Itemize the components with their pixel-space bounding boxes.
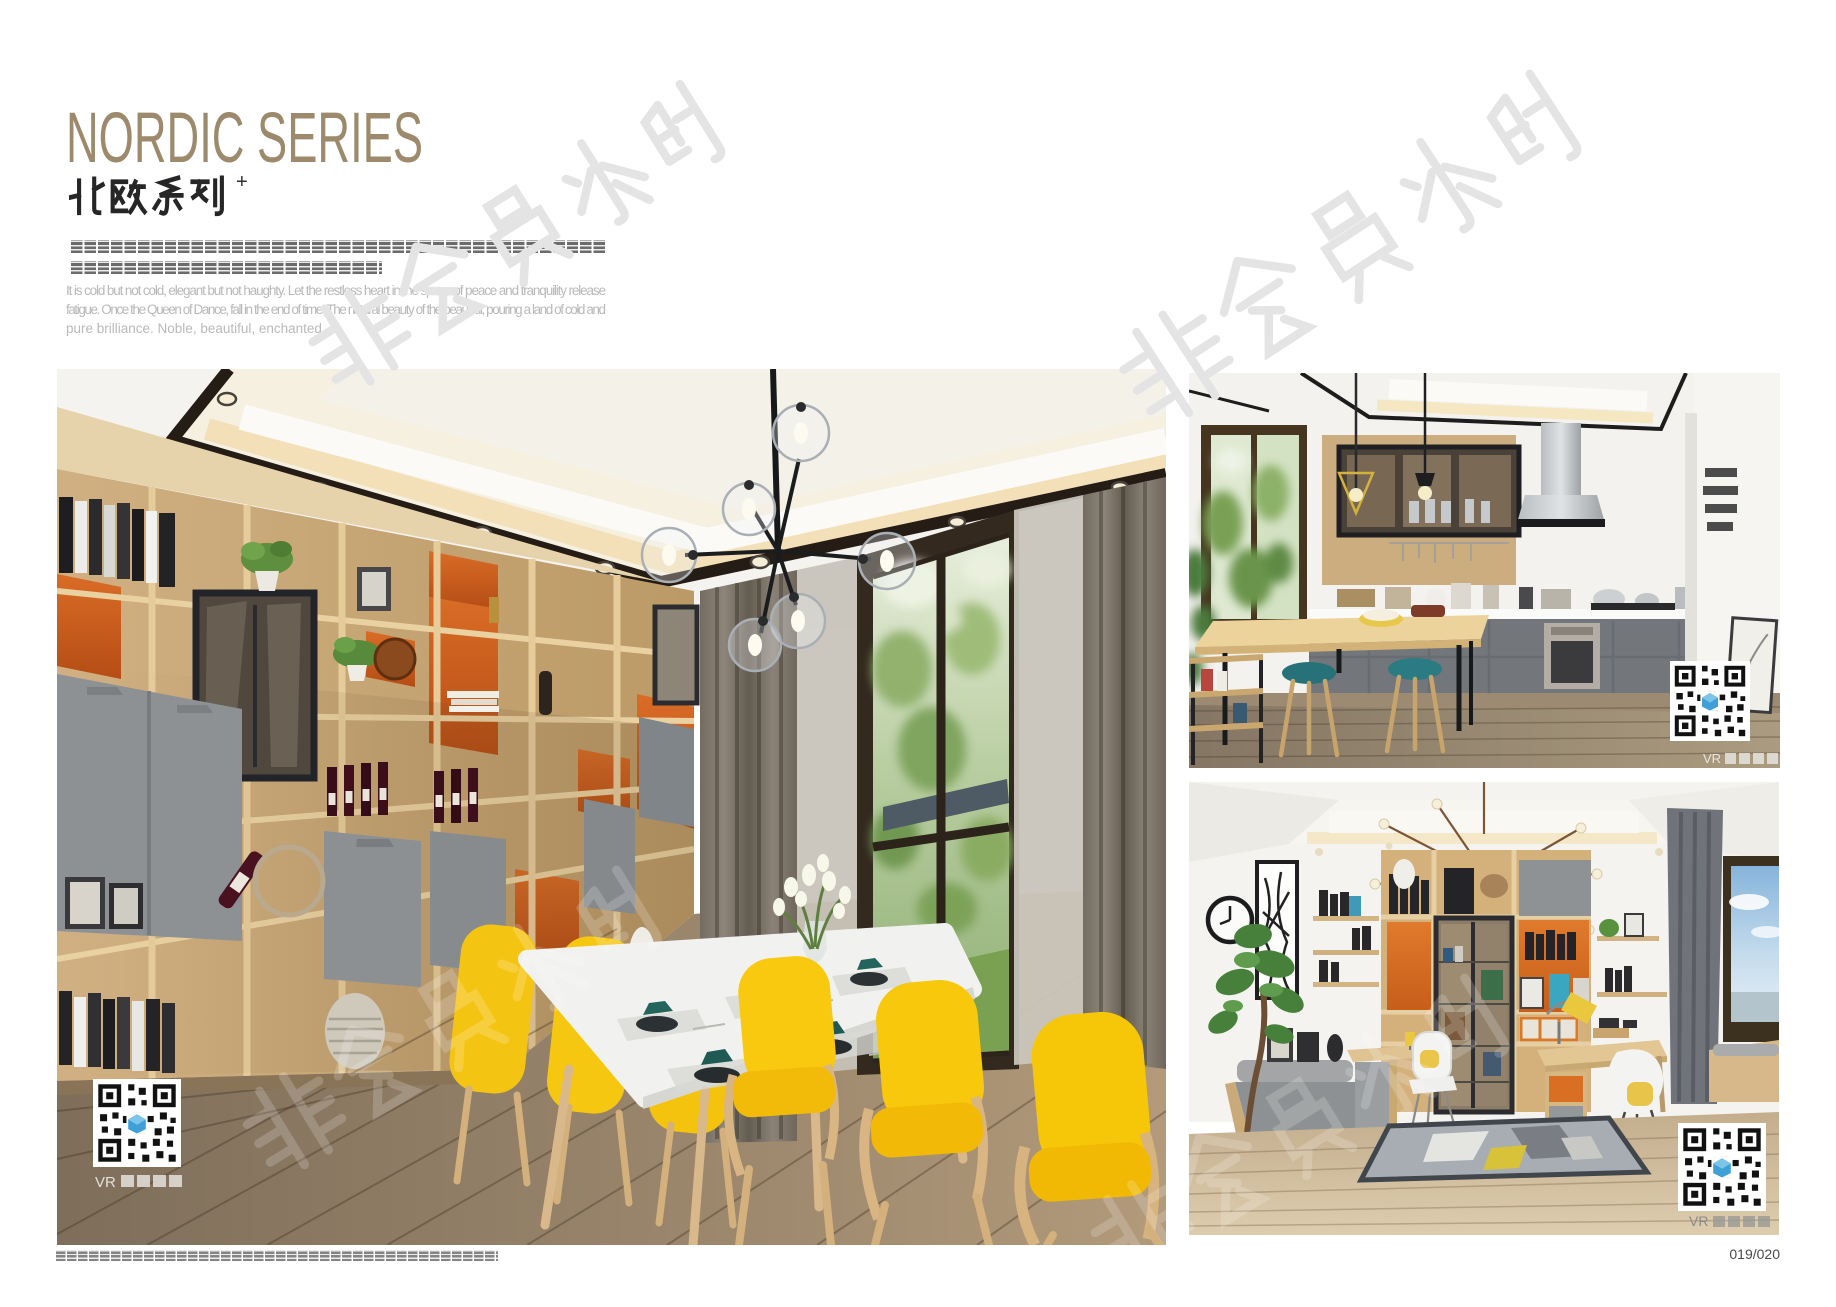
svg-text:It is cold but not cold, elega: It is cold but not cold, elegant but not… <box>66 283 606 298</box>
svg-text:VR: VR <box>95 1174 116 1191</box>
svg-text:VR: VR <box>1703 751 1721 766</box>
svg-text:fatigue. Once the Queen of Dan: fatigue. Once the Queen of Dance, fall i… <box>66 302 606 317</box>
svg-text:VR: VR <box>1689 1213 1708 1229</box>
svg-text:NORDIC SERIES: NORDIC SERIES <box>66 109 423 171</box>
svg-text:pure brilliance. Noble, beauti: pure brilliance. Noble, beautiful, encha… <box>66 321 326 336</box>
